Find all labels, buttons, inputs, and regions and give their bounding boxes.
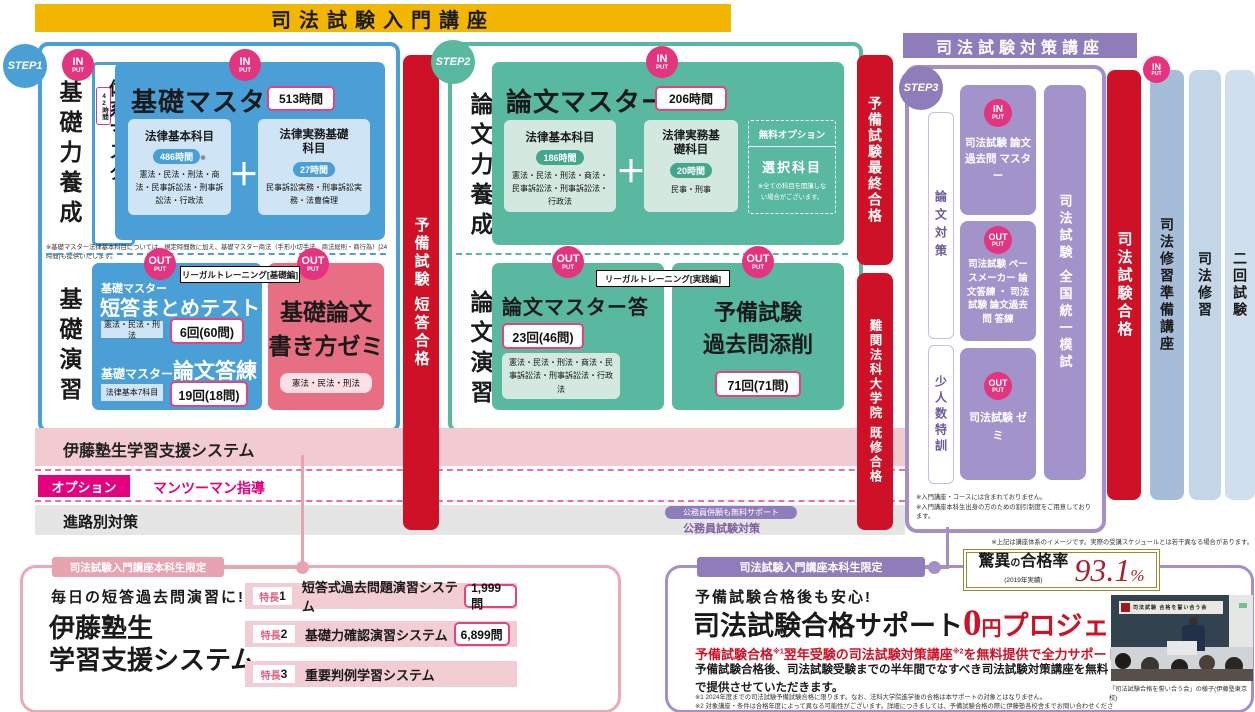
shinro-row: 進路別対策 公務員併願も無料サポート 公務員試験対策 (35, 505, 905, 535)
s2-jitsumu-hours-badge: 20時間 (670, 163, 712, 178)
tanto-matome-box: 基礎マスター 短答まとめテスト 憲法・民法・刑法 6回(60問) 基礎マスター論… (92, 263, 262, 410)
jitsumu-kamoku-box: 法律実務基礎科目 27時間 民事訴訟実務・刑事訴訟実務・法曹倫理 (258, 119, 370, 215)
feature-row: 特長 3 重要判例学習システム (245, 661, 517, 687)
photo-caption: 「司法試験合格を誓い合う会」の様子(伊藤塾東京校) (1109, 684, 1255, 702)
feature-label: 特長 (261, 667, 281, 682)
feature-title: 短答式過去問題演習システム (302, 577, 458, 615)
feature-num: 1 (279, 589, 286, 603)
bar-yobi-tanto-goukaku: 予備試験 短答合格 (403, 55, 439, 530)
audience-head (1115, 653, 1131, 669)
intro-course-title: 司法試験入門講座 (271, 4, 495, 33)
zero-yen-project-box: 予備試験合格後も安心! 司法試験合格サポート0円プロジェクト 予備試験合格※1翌… (665, 565, 1254, 712)
connector-line-right (946, 527, 949, 565)
option-badge: オプション (38, 475, 130, 497)
zemi-title-line2: 書き方ゼミ (268, 327, 384, 361)
jitsumu-subjects: 民事訴訟実務・刑事訴訟実務・法曹倫理 (266, 182, 362, 208)
ronbun-toren-count: 23回(46問) (502, 323, 584, 349)
tanto-count-badge: 6回(60問) (170, 318, 244, 344)
feature-label: 特長 (259, 589, 279, 604)
option-row: オプション マンツーマン指導 (35, 469, 905, 502)
side-label-ronbun-taisaku: 論文対策 (928, 112, 954, 339)
kihon-subjects: 憲法・民法・刑法・商法・民事訴訟法・刑事訴訟法・行政法 (134, 169, 225, 207)
rate-label: 驚異の合格率 (978, 553, 1068, 570)
output-circle-s3b: OUT PUT (984, 372, 1012, 400)
ronbun-toren-subjects: 憲法・民法・刑法・商法・民事訴訟法・刑事訴訟法・行政法 (502, 353, 620, 399)
bar-shushu: 司法修習 (1189, 70, 1221, 500)
option-title: 選択科目 (749, 157, 835, 176)
kiso-hours-badge: 513時間 (267, 86, 335, 111)
free-option-label: 無料オプション (749, 121, 835, 147)
ronbun-hours-badge: 206時間 (655, 86, 727, 111)
br-note1: ※1 2024年度までの司法試験予備試験合格に限ります。なお、法科大学院進学後の… (695, 692, 1125, 701)
course-structure-diagram: 司法試験入門講座 司法試験対策講座 STEP1 基礎力養成 基礎演習 42時間 … (0, 0, 1255, 712)
kakomon-title-line2: 過去問添削 (672, 327, 844, 359)
feature-count: 1,999問 (464, 584, 517, 608)
schedule-note: ※上記は講座体系のイメージです。実際の受講スケジュールとは若干異なる場合がありま… (950, 537, 1253, 546)
jitsumu-hours-badge: 27時間 (293, 162, 335, 177)
phase-label-kisoryoku: 基礎力養成 (52, 80, 86, 230)
bl-title-line2: 学習支援システム (49, 640, 256, 677)
shinro-label: 進路別対策 (63, 511, 138, 532)
output-circle-tanto: OUT PUT (144, 248, 176, 280)
feature-label-box: 特長 3 (253, 665, 295, 683)
step3-note2: ※入門講座本科生出身の方のための割引制度をご用意しております。 (916, 502, 1094, 520)
ronbun-master-title: 論文マスター (506, 82, 668, 119)
output-circle-zemi: OUT PUT (297, 248, 329, 280)
step2-divider (456, 253, 848, 255)
kiso-footnote: ※基礎マスター法律基本科目については、規定時間数に加え、基礎マスター商法（手形小… (46, 242, 388, 260)
s2-jitsumu-subjects: 民事・刑事 (652, 184, 730, 195)
step2-badge: STEP2 (431, 40, 475, 84)
toren-subjects: 法律基本7科目 (101, 384, 163, 401)
zemi-title-line1: 基礎論文 (268, 293, 384, 327)
feature-row: 特長 1 短答式過去問題演習システム 1,999問 (245, 583, 517, 609)
koumuin-pill: 公務員併願も無料サポート (665, 506, 797, 519)
taisaku-course-title: 司法試験対策講座 (936, 34, 1104, 58)
step3-badge: STEP3 (899, 66, 943, 110)
audience-shoulders (1111, 669, 1253, 681)
s2-kihon-hours-badge: 186時間 (536, 150, 583, 165)
taisaku-course-banner: 司法試験対策講座 (903, 33, 1137, 58)
bar-yobi-saishu-goukaku: 予備試験最終合格 (857, 55, 893, 265)
s3-box2-title: 司法試験 ペースメーカー 論文答練 ・ 司法試験 論文過去問 答練 (965, 258, 1031, 327)
feature-count: 6,899問 (454, 622, 510, 646)
s3-box3-title: 司法試験 ゼミ (968, 410, 1028, 445)
kakomon-count: 71回(71問) (715, 371, 801, 397)
support-system-label: 伊藤塾生学習支援システム (63, 437, 255, 461)
kihon-note-mark: ※ (200, 155, 206, 162)
man-to-man-label: マンツーマン指導 (153, 478, 265, 498)
zemi-subjects: 憲法・民法・刑法 (280, 373, 372, 393)
bar-shushu-junbi: 司法修習準備講座 (1150, 70, 1184, 500)
s2-kihon-title: 法律基本科目 (504, 129, 616, 145)
seminar-photo: 司法試験 合格を誓い合う会 (1111, 595, 1253, 681)
s2-kihon-box: 法律基本科目 186時間 憲法・民法・刑法・商法・民事訴訟法・刑事訴訟法・行政法 (504, 120, 616, 212)
br-title-yen: 円 (982, 618, 1002, 640)
jitsumu-kamoku-title: 法律実務基礎科目 (276, 128, 352, 157)
podium (1167, 641, 1197, 655)
step1-divider (46, 253, 386, 255)
connector-dot-left (296, 561, 309, 574)
pass-rate-badge: 驚異の合格率 (2019年実績) 93.1% (963, 549, 1160, 591)
bl-tab: 司法試験入門講座本科生限定 (52, 557, 224, 577)
feature-row: 特長 2 基礎力確認演習システム 6,899問 (245, 621, 517, 647)
s2-kihon-subjects: 憲法・民法・刑法・商法・民事訴訟法・刑事訴訟法・行政法 (512, 170, 608, 208)
mock-exam-column: 司法試験 全国統一模試 (1044, 85, 1086, 480)
koumuin-label: 公務員試験対策 (683, 520, 760, 536)
option-note: ※全ての科目を開講しない場合がございます。 (756, 182, 828, 203)
s3-pacemaker-box: OUT PUT 司法試験 ペースメーカー 論文答練 ・ 司法試験 論文過去問 答… (960, 221, 1036, 341)
bar-shihou-goukaku: 司法試験合格 (1107, 70, 1141, 500)
connector-dot-right (928, 561, 941, 574)
tanto-subjects: 憲法・民法・刑法 (101, 321, 163, 338)
feature-label-box: 特長 2 (253, 625, 295, 643)
kihon-hours-badge: 486時間 (153, 149, 200, 164)
kihon-kamoku-title: 法律基本科目 (128, 128, 231, 144)
connector-line-left (301, 455, 304, 563)
input-circle-taikei: IN PUT (62, 49, 94, 81)
toren-title: 論文答練 (173, 360, 257, 383)
kiso-master-box: 基礎マスター 513時間 法律基本科目 486時間※ 憲法・民法・刑法・商法・民… (115, 62, 385, 240)
feature-title: 基礎力確認演習システム (305, 625, 448, 644)
feature-label: 特長 (261, 627, 281, 642)
bar-lawschool-goukaku: 難関法科大学院 既修合格 (857, 273, 893, 530)
step3-note1: ※入門講座・コースには含まれておりません。 (916, 492, 1094, 501)
exit-sign (1239, 603, 1247, 608)
rate-value: 93.1% (1074, 552, 1144, 589)
output-circle-s3a: OUT PUT (984, 226, 1012, 254)
legal-training-basic-label: リーガルトレーニング[基礎編] (180, 266, 300, 283)
s3-box1-title: 司法試験 論文過去問 マスター (965, 135, 1031, 184)
br-tab: 司法試験入門講座本科生限定 (697, 557, 925, 577)
support-system-row: 伊藤塾生学習支援システム (35, 428, 905, 466)
bar-nikai-shiken: 二回試験 (1225, 70, 1255, 500)
rate-year: (2019年実績) (1004, 577, 1042, 584)
kakomon-title-line1: 予備試験 (672, 295, 844, 327)
input-circle-ronbun: IN PUT (646, 46, 678, 78)
input-circle-kiso: IN PUT (229, 49, 261, 81)
br-title-zero: 0 (963, 603, 982, 644)
s3-kakomon-master-box: IN PUT 司法試験 論文過去問 マスター (960, 85, 1036, 215)
legal-training-practice-label: リーガルトレーニング[実践編] (596, 270, 730, 287)
br-red-line: 予備試験合格※1翌年受験の司法試験対策講座※2を無料提供で全力サポートします。 (695, 644, 1170, 663)
free-option-box: 無料オプション 選択科目 ※全ての科目を開講しない場合がございます。 (748, 120, 836, 214)
tanto-title: 短答まとめテスト (100, 292, 260, 321)
kiso-ronbun-zemi-box: 基礎論文 書き方ゼミ 憲法・民法・刑法 (268, 263, 384, 410)
side-label-shoninzu: 少人数特訓 (928, 345, 954, 484)
toren-count-badge: 19回(18問) (170, 381, 248, 407)
input-circle-s3: IN PUT (984, 99, 1012, 127)
s2-jitsumu-box: 法律実務基礎科目 20時間 民事・刑事 (644, 120, 738, 212)
output-circle-toren: OUT PUT (552, 246, 584, 278)
feature-title: 重要判例学習システム (305, 665, 435, 684)
photo-banner: 司法試験 合格を誓い合う会 (1119, 601, 1223, 614)
support-system-detail-box: 毎日の短答過去問演習に! 伊藤塾生 学習支援システム 特長 1 短答式過去問題演… (20, 565, 621, 712)
feature-label-box: 特長 1 (253, 587, 292, 605)
phase-label-kisoenshu: 基礎演習 (52, 287, 86, 407)
output-circle-kakomon: OUT PUT (742, 246, 774, 278)
step1-badge: STEP1 (3, 44, 47, 88)
connector-hline-left (222, 566, 302, 569)
photo-board-text: 司法試験 合格を誓い合う会 (1133, 604, 1207, 611)
br-title-black: 司法試験合格サポート (693, 611, 963, 641)
s2-jitsumu-title: 法律実務基礎科目 (658, 129, 724, 158)
toren-pre-label: 基礎マスター (101, 367, 173, 381)
input-circle-shushu: IN PUT (1143, 56, 1170, 83)
plus-sign: ＋ (229, 150, 259, 194)
feature-num: 2 (281, 627, 288, 641)
s2-plus-sign: ＋ (616, 147, 646, 191)
br-note2: ※2 対象講座・条件は合格年度によって異なる可能性がございます。詳細につきまして… (695, 701, 1125, 712)
feature-num: 3 (281, 667, 288, 681)
kihon-kamoku-box: 法律基本科目 486時間※ 憲法・民法・刑法・商法・民事訴訟法・刑事訴訟法・行政… (128, 119, 231, 215)
intro-course-banner: 司法試験入門講座 (35, 4, 731, 32)
s3-zemi-box: OUT PUT 司法試験 ゼミ (960, 348, 1036, 480)
bl-lead: 毎日の短答過去問演習に! (51, 586, 245, 607)
photo-logo (1121, 603, 1130, 612)
ronbun-master-box: 論文マスター 206時間 法律基本科目 186時間 憲法・民法・刑法・商法・民事… (492, 62, 844, 245)
